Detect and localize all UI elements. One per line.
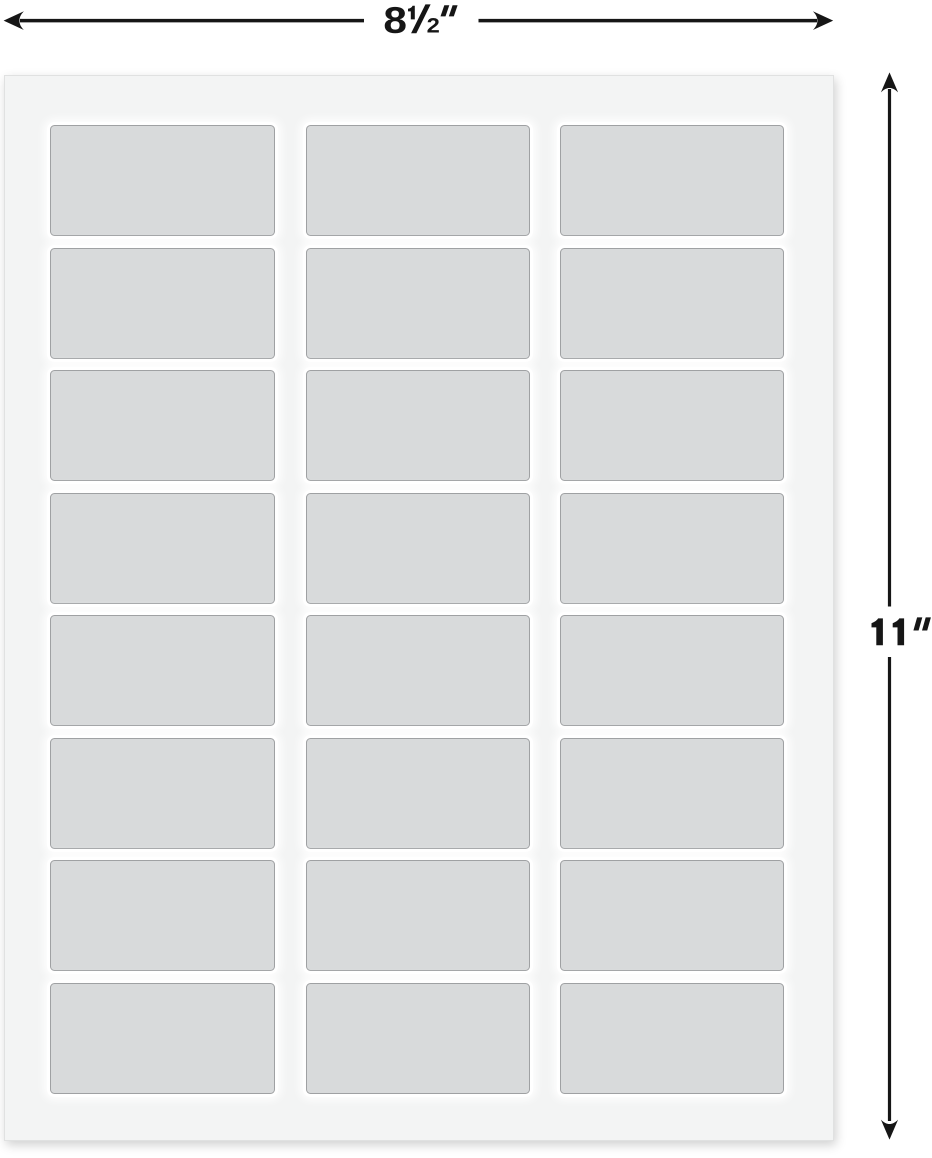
- svg-text:2: 2: [427, 14, 440, 37]
- svg-text:8: 8: [383, 0, 407, 41]
